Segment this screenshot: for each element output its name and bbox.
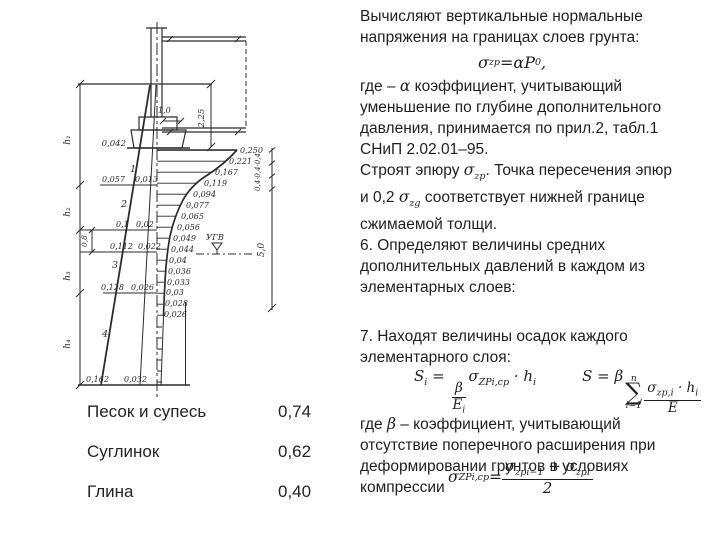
epure-value: 0,049 <box>173 234 196 243</box>
epure-value: 0,04 <box>169 256 187 265</box>
building-outline <box>78 28 246 148</box>
sigma-zg-value: 0,162 <box>86 375 109 384</box>
epure-value: 0,167 <box>215 168 239 177</box>
paragraph-line: и 0,2 σzg соответствует нижней границе <box>360 187 716 214</box>
depth-dimension: 2,25 <box>197 80 215 151</box>
epure-value: 0,221 <box>229 157 252 166</box>
point2-sigma-zg-value: 0,02 <box>136 220 154 229</box>
soil-type-label: Суглинок <box>87 442 159 461</box>
epure-value: 0,077 <box>186 201 210 210</box>
footing-base-value: 0,042 <box>102 139 126 149</box>
sigma-symbol: σ <box>478 52 489 73</box>
sigma-subscript: zp <box>489 52 500 73</box>
text-fragment: Строят эпюру <box>360 162 464 179</box>
dim-2-25-label: 2,25 <box>197 109 207 129</box>
layer-number: 1 <box>130 164 136 175</box>
formula-si: Si = βEiσZPi,cp · hi <box>414 366 536 416</box>
slide: 0,250 0,221 0,167 0,119 0,094 0,077 0,06… <box>0 0 720 540</box>
epure-value: 0,033 <box>167 278 190 287</box>
sigma-zg-value: 0,057 <box>102 175 126 184</box>
point2-sigma-zg-value: 0,032 <box>124 375 147 384</box>
ugv-label: УГВ <box>206 233 224 243</box>
soil-type-label: Глина <box>87 482 134 501</box>
beta-value: 0,74 <box>278 402 311 422</box>
paragraph-line: отсутствие поперечного расширения при <box>360 435 716 456</box>
table-row: Глина 0,40 <box>87 482 317 522</box>
dim-5-0-label: 5,0 <box>257 243 267 258</box>
epure-value: 0,03 <box>166 288 184 297</box>
epure-value: 0,026 <box>164 310 187 319</box>
dim-1-0-label: 1,0 <box>158 106 171 115</box>
point2-sigma-zg-value: 0,026 <box>131 283 154 292</box>
beta-coefficient-table: Песок и супесь 0,74 Суглинок 0,62 Глина … <box>87 402 317 522</box>
paragraph-line: Строят эпюру σzp. Точка пересечения эпюр <box>360 160 716 187</box>
text-fragment: – коэффициент, учитывающий <box>396 416 621 433</box>
text-fragment: где <box>360 416 387 433</box>
layer-number: 4 <box>101 329 108 340</box>
epure-value: 0,094 <box>193 190 216 199</box>
alpha-symbol: α <box>400 77 410 95</box>
text-fragment: . Точка пересечения эпюр <box>485 162 672 179</box>
h-label: h₄ <box>63 339 73 349</box>
paragraph-line: уменьшение по глубине дополнительного <box>360 97 716 118</box>
text-fragment: где – <box>360 78 400 95</box>
text-fragment: соответствует нижней границе <box>421 189 645 206</box>
right-depth-dimension: 0,4·0,4·0,4 5,0 <box>254 148 276 313</box>
paragraph-line: 7. Находят величины осадок каждого <box>360 326 716 347</box>
epure-value: 0,065 <box>181 212 204 221</box>
epure-value: 0,056 <box>177 223 200 232</box>
lecture-text: Вычисляют вертикальные нормальные напряж… <box>360 6 716 498</box>
paragraph-line: Вычисляют вертикальные нормальные <box>360 6 716 27</box>
paragraph-line: дополнительных давлений в каждом из <box>360 256 716 277</box>
h-label: h₂ <box>63 207 73 217</box>
left-dimension-line <box>76 80 95 389</box>
text-fragment: и 0,2 <box>360 189 399 206</box>
paragraph-line: 6. Определяют величины средних <box>360 235 716 256</box>
beta-symbol: β <box>387 415 396 433</box>
paragraph-line: давления, принимается по прил.2, табл.1 <box>360 118 716 139</box>
h-label: h₁ <box>63 135 73 144</box>
paragraph-line: где β – коэффициент, учитывающий <box>360 414 716 435</box>
epure-value: 0,036 <box>168 267 191 276</box>
paragraph-line: сжимаемой толщи. <box>360 214 716 235</box>
epure-value: 0,044 <box>171 245 194 254</box>
epure-value: 0,119 <box>204 179 227 188</box>
epure-value: 0,028 <box>165 299 188 308</box>
sigma-symbol: σzg <box>399 188 421 206</box>
comma: , <box>541 52 546 73</box>
beta-value: 0,62 <box>278 442 311 462</box>
layer-height-labels: h₁ h₂ h₃ h₄ 0,8 <box>63 135 89 348</box>
dim-0-8-label: 0,8 <box>80 235 89 247</box>
soil-type-label: Песок и супесь <box>87 402 206 421</box>
paragraph-line: где – α коэффициент, учитывающий <box>360 76 716 97</box>
paragraph-line: напряжения на границах слоев грунта: <box>360 27 716 48</box>
layer-number: 3 <box>112 260 118 271</box>
formula-sigma-zp: σzp = αP0, <box>360 48 716 76</box>
table-row: Песок и супесь 0,74 <box>87 402 317 442</box>
text-fragment: коэффициент, учитывающий <box>410 78 622 95</box>
pressure-symbol: P <box>524 52 535 73</box>
sigma-zg-value: 0,128 <box>101 283 124 292</box>
paragraph-line: элементарных слоев: <box>360 277 716 298</box>
alpha-symbol: α <box>513 52 524 73</box>
point2-sigma-zg-value: 0,022 <box>138 242 161 251</box>
dim-0-4-label: 0,4·0,4·0,4 <box>254 153 262 191</box>
beta-value: 0,40 <box>278 482 311 502</box>
formula-sigma-mean: σZPi,cp = σzpi−1 + σzpi2 <box>448 458 593 497</box>
table-row: Суглинок 0,62 <box>87 442 317 482</box>
sigma-zg-value: 0,112 <box>110 242 133 251</box>
equals-sign: = <box>500 52 513 73</box>
settlement-formulas: Si = βEiσZPi,cp · hi S = βn∑i=1σzp,i · h… <box>360 368 716 414</box>
ugv-triangle-icon <box>212 243 222 254</box>
formula-s-total: S = βn∑i=1σzp,i · hiE <box>582 366 701 416</box>
sigma-zg-value: 0,1 <box>116 220 129 229</box>
layer-number: 2 <box>120 199 127 210</box>
groundwater-mark: УГВ <box>196 233 254 254</box>
paragraph-line: элементарного слоя: <box>360 347 716 368</box>
sigma-symbol: σzp <box>464 161 486 179</box>
paragraph-line: СНиП 2.02.01–95. <box>360 139 716 160</box>
h-label: h₃ <box>63 271 73 281</box>
point2-sigma-zg-value: 0,013 <box>135 175 158 184</box>
